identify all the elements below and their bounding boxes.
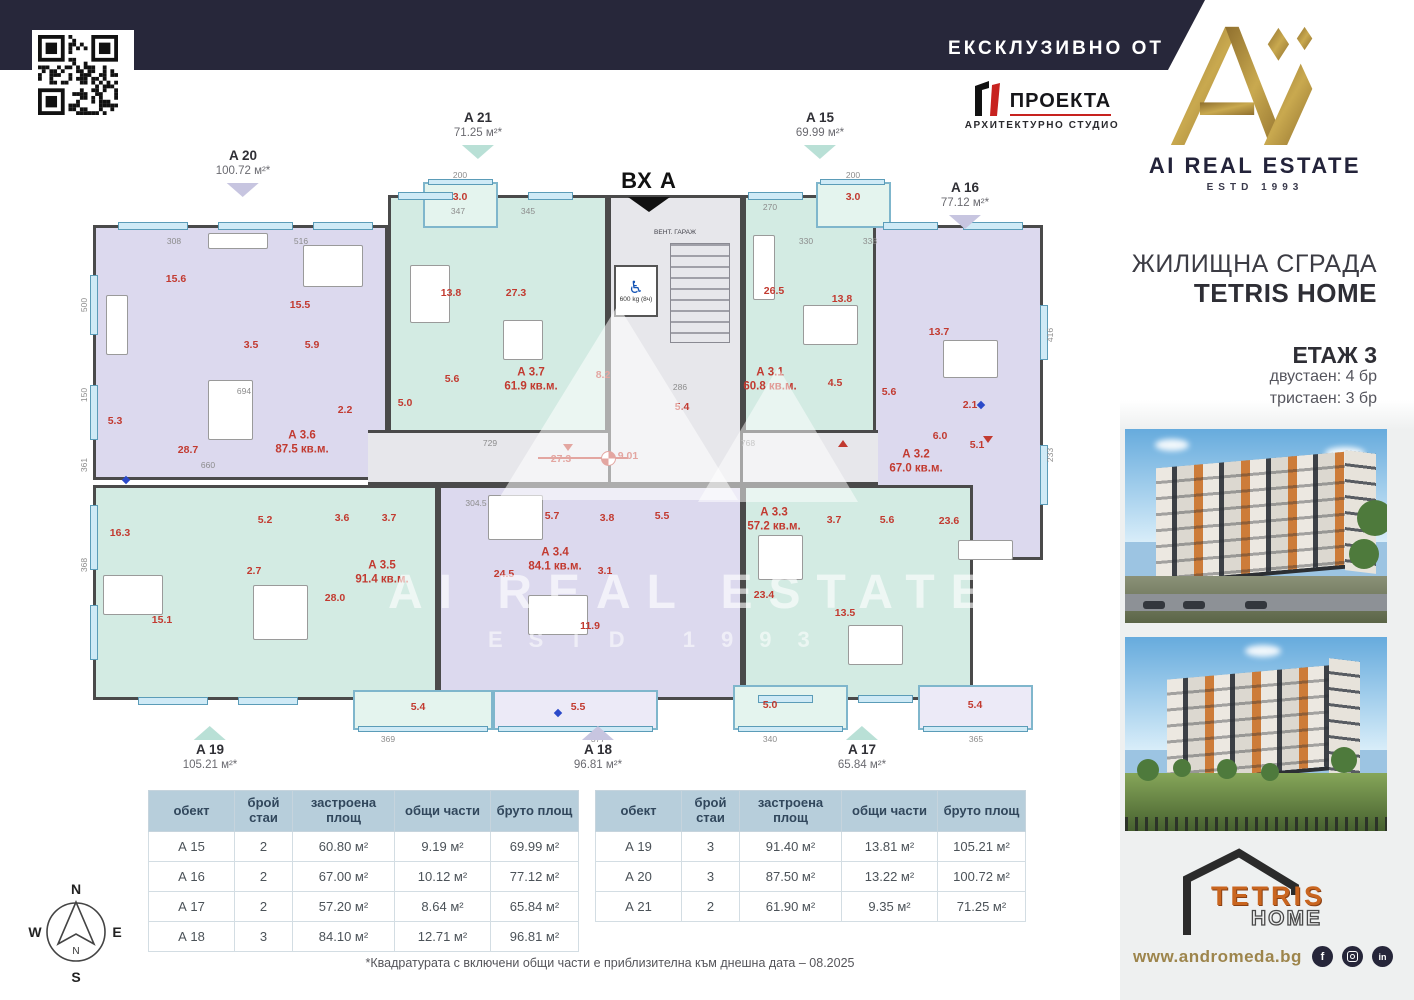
table-cell: 2 bbox=[682, 892, 740, 922]
compass-inner-n: N bbox=[72, 946, 79, 957]
col-header: бруто площ bbox=[491, 791, 579, 832]
furniture bbox=[303, 245, 363, 287]
col-header: брой стаи bbox=[682, 791, 740, 832]
table-cell: А 15 bbox=[149, 832, 235, 862]
table-cell: 9.35 м² bbox=[842, 892, 938, 922]
tree bbox=[1357, 500, 1387, 536]
balcony-area: 5.4 bbox=[968, 699, 983, 711]
marker-name: A 18 bbox=[574, 742, 622, 758]
units-count-2room: двустаен: 4 бр bbox=[1123, 368, 1377, 386]
window-strip bbox=[90, 275, 98, 335]
tree bbox=[1331, 747, 1357, 773]
arrow-up-icon bbox=[846, 726, 878, 740]
dimension: 304.5 bbox=[465, 498, 486, 508]
furniture bbox=[958, 540, 1013, 560]
room-area: 26.5 bbox=[764, 285, 784, 297]
table-cell: 69.99 м² bbox=[491, 832, 579, 862]
fence bbox=[1125, 817, 1387, 831]
table-cell: А 18 bbox=[149, 922, 235, 952]
building-name: TETRIS HOME bbox=[1123, 278, 1377, 309]
room-area: 5.9 bbox=[305, 339, 320, 351]
dimension: 200 bbox=[846, 170, 860, 180]
table-row: А 17257.20 м²8.64 м²65.84 м² bbox=[149, 892, 579, 922]
window-strip bbox=[748, 192, 803, 200]
table-cell: 67.00 м² bbox=[293, 862, 395, 892]
table-cell: 12.71 м² bbox=[395, 922, 491, 952]
dimension: 694 bbox=[237, 386, 251, 396]
room-area: 3.8 bbox=[600, 512, 615, 524]
table-cell: 3 bbox=[682, 862, 740, 892]
balcony-area: 3.0 bbox=[846, 191, 861, 203]
table-cell: А 17 bbox=[149, 892, 235, 922]
dimension: 729 bbox=[483, 438, 497, 448]
room-area: 6.0 bbox=[933, 430, 948, 442]
compass-s: S bbox=[71, 969, 80, 985]
marker-area: 100.72 м²* bbox=[216, 164, 271, 179]
furniture bbox=[488, 495, 543, 540]
dimension: 516 bbox=[294, 236, 308, 246]
room-area: 3.5 bbox=[244, 339, 259, 351]
building-photo-2 bbox=[1125, 637, 1387, 831]
dimension: 340 bbox=[763, 734, 777, 744]
tetris-home-word: HOME bbox=[1251, 907, 1322, 931]
room-area: 5.6 bbox=[880, 514, 895, 526]
tetris-home-logo: TETRIS HOME bbox=[1177, 845, 1357, 937]
marker-name: A 19 bbox=[183, 742, 238, 758]
marker-area: 77.12 м²* bbox=[941, 196, 989, 211]
marker-area: 69.99 м²* bbox=[796, 126, 844, 141]
room-area: 3.6 bbox=[335, 512, 350, 524]
room-area: 5.7 bbox=[545, 510, 560, 522]
social-icons: f in bbox=[1312, 946, 1393, 967]
table-cell: 71.25 м² bbox=[938, 892, 1026, 922]
window-strip bbox=[138, 697, 208, 705]
proekta-name: ПРОЕКТА bbox=[1010, 90, 1111, 116]
floor-label: ЕТАЖ 3 bbox=[1123, 342, 1377, 369]
window-strip bbox=[90, 385, 98, 440]
balcony-area: 5.5 bbox=[571, 701, 586, 713]
table-row: А 15260.80 м²9.19 м²69.99 м² bbox=[149, 832, 579, 862]
tree bbox=[1261, 763, 1279, 781]
unit-area: 57.2 кв.м. bbox=[747, 520, 800, 534]
furniture bbox=[253, 585, 308, 640]
table-row: А 16267.00 м²10.12 м²77.12 м² bbox=[149, 862, 579, 892]
dimension: 150 bbox=[79, 388, 89, 402]
red-tick-icon bbox=[983, 436, 993, 443]
room-area: 3.7 bbox=[827, 514, 842, 526]
brand-name: AI REAL ESTATE bbox=[1126, 153, 1384, 179]
table-cell: А 21 bbox=[596, 892, 682, 922]
table-cell: 61.90 м² bbox=[740, 892, 842, 922]
col-header: застроена площ bbox=[740, 791, 842, 832]
room-area: 15.6 bbox=[166, 273, 186, 285]
table-cell: 10.12 м² bbox=[395, 862, 491, 892]
dimension: 660 bbox=[201, 460, 215, 470]
table-cell: 3 bbox=[235, 922, 293, 952]
vent-label: ВЕНТ. ГАРАЖ bbox=[654, 229, 696, 236]
furniture bbox=[208, 233, 268, 249]
arrow-down-icon bbox=[227, 183, 259, 197]
tree bbox=[1137, 759, 1159, 781]
marker-name: A 20 bbox=[216, 148, 271, 164]
exclusive-label: ЕКСКЛУЗИВНО ОТ bbox=[940, 38, 1172, 60]
dimension: 345 bbox=[521, 206, 535, 216]
marker-A21: A 2171.25 м²* bbox=[454, 110, 502, 161]
table-cell: 87.50 м² bbox=[740, 862, 842, 892]
marker-A16: A 1677.12 м²* bbox=[941, 180, 989, 231]
window-strip bbox=[238, 697, 298, 705]
col-header: общи части bbox=[842, 791, 938, 832]
arrow-down-icon bbox=[949, 215, 981, 229]
floor-plan: ♿600 kg (8ч)ВЕНТ. ГАРАЖА 3.687.5 кв.м.15… bbox=[58, 145, 1120, 795]
room-area: 5.2 bbox=[258, 514, 273, 526]
compass-w: W bbox=[28, 924, 42, 940]
table-cell: 105.21 м² bbox=[938, 832, 1026, 862]
table-cell: 57.20 м² bbox=[293, 892, 395, 922]
marker-A17: A 1765.84 м²* bbox=[838, 722, 886, 773]
room-area: 5.0 bbox=[398, 397, 413, 409]
table-cell: 2 bbox=[235, 862, 293, 892]
table-cell: 9.19 м² bbox=[395, 832, 491, 862]
building-facade bbox=[1167, 664, 1340, 780]
unit-label: А 3.267.0 кв.м. bbox=[889, 448, 942, 477]
marker-name: A 17 bbox=[838, 742, 886, 758]
room-area: 5.3 bbox=[108, 415, 123, 427]
marker-name: A 21 bbox=[454, 110, 502, 126]
instagram-icon bbox=[1342, 946, 1363, 967]
wheelchair-icon: ♿ bbox=[628, 279, 643, 296]
linkedin-icon: in bbox=[1372, 946, 1393, 967]
entrance-label: ВХ А bbox=[607, 168, 691, 212]
areas-table-2: обектброй стаизастроена площобщи частибр… bbox=[595, 790, 1026, 922]
dimension: 416 bbox=[1045, 328, 1055, 342]
window-strip bbox=[90, 605, 98, 660]
balcony-area: 3.0 bbox=[453, 191, 468, 203]
table-cell: 65.84 м² bbox=[491, 892, 579, 922]
room-area: 13.7 bbox=[929, 326, 949, 338]
dimension: 369 bbox=[381, 734, 395, 744]
balcony bbox=[733, 685, 848, 730]
room-area: 5.5 bbox=[655, 510, 670, 522]
dimension: 270 bbox=[763, 202, 777, 212]
window-strip bbox=[358, 726, 488, 732]
room-area: 28.0 bbox=[325, 592, 345, 604]
room-area: 5.6 bbox=[445, 373, 460, 385]
dimension: 368 bbox=[79, 558, 89, 572]
watermark-estd: ESTD 1993 bbox=[488, 627, 836, 653]
areas-table-1: обектброй стаизастроена площобщи частибр… bbox=[148, 790, 579, 952]
table-cell: 77.12 м² bbox=[491, 862, 579, 892]
window-strip bbox=[118, 222, 188, 230]
col-header: застроена площ bbox=[293, 791, 395, 832]
proekta-icon bbox=[973, 80, 1003, 116]
furniture bbox=[803, 305, 858, 345]
room-area: 15.1 bbox=[152, 614, 172, 626]
furniture bbox=[848, 625, 903, 665]
entrance-arrow-icon bbox=[628, 197, 670, 212]
table-cell: 8.64 м² bbox=[395, 892, 491, 922]
window-strip bbox=[313, 222, 373, 230]
table-cell: 2 bbox=[235, 892, 293, 922]
room-area: 15.5 bbox=[290, 299, 310, 311]
room-area: 23.6 bbox=[939, 515, 959, 527]
dimension: 365 bbox=[969, 734, 983, 744]
brand-logo-icon bbox=[1167, 20, 1322, 153]
table-row: А 21261.90 м²9.35 м²71.25 м² bbox=[596, 892, 1026, 922]
col-header: общи части bbox=[395, 791, 491, 832]
marker-name: A 16 bbox=[941, 180, 989, 196]
marker-name: A 15 bbox=[796, 110, 844, 126]
room-area: 13.8 bbox=[832, 293, 852, 305]
marker-area: 105.21 м²* bbox=[183, 758, 238, 773]
compass-n: N bbox=[71, 881, 81, 897]
furniture bbox=[943, 340, 998, 378]
marker-A20: A 20100.72 м²* bbox=[216, 148, 271, 199]
elevator-capacity: 600 kg (8ч) bbox=[620, 296, 653, 304]
room-area: 13.8 bbox=[441, 287, 461, 299]
room-area: 5.6 bbox=[882, 386, 897, 398]
table-row: А 19391.40 м²13.81 м²105.21 м² bbox=[596, 832, 1026, 862]
window-strip bbox=[398, 192, 453, 200]
compass-rose: N E S W N bbox=[28, 878, 124, 991]
furniture bbox=[106, 295, 128, 355]
room-area: 16.3 bbox=[110, 527, 130, 539]
compass-e: E bbox=[112, 924, 121, 940]
unit-area: 67.0 кв.м. bbox=[889, 462, 942, 476]
window-strip bbox=[883, 222, 938, 230]
watermark-text: AI REAL ESTATE bbox=[388, 565, 999, 620]
room-area: 2.2 bbox=[338, 404, 353, 416]
dimension: 347 bbox=[451, 206, 465, 216]
car bbox=[1143, 601, 1165, 609]
dimension: 361 bbox=[79, 458, 89, 472]
room-area: 27.3 bbox=[506, 287, 526, 299]
table-row: А 18384.10 м²12.71 м²96.81 м² bbox=[149, 922, 579, 952]
car bbox=[1245, 601, 1267, 609]
proekta-subtitle: АРХИТЕКТУРНО СТУДИО bbox=[952, 120, 1132, 131]
dimension: 200 bbox=[453, 170, 467, 180]
dimension: 500 bbox=[79, 298, 89, 312]
balcony bbox=[423, 182, 498, 228]
qr-code bbox=[32, 30, 134, 130]
marker-area: 96.81 м²* bbox=[574, 758, 622, 773]
marker-A19: A 19105.21 м²* bbox=[183, 722, 238, 773]
arrow-up-icon bbox=[582, 726, 614, 740]
facebook-icon: f bbox=[1312, 946, 1333, 967]
window-strip bbox=[923, 726, 1028, 732]
unit-label: А 3.687.5 кв.м. bbox=[275, 429, 328, 458]
marker-area: 71.25 м²* bbox=[454, 126, 502, 141]
units-count-3room: тристаен: 3 бр bbox=[1123, 390, 1377, 408]
col-header: бруто площ bbox=[938, 791, 1026, 832]
col-header: обект bbox=[149, 791, 235, 832]
window-strip bbox=[528, 192, 573, 200]
table-cell: 100.72 м² bbox=[938, 862, 1026, 892]
tree bbox=[1349, 539, 1379, 569]
table-cell: 60.80 м² bbox=[293, 832, 395, 862]
table-row: А 20387.50 м²13.22 м²100.72 м² bbox=[596, 862, 1026, 892]
proekta-logo: ПРОЕКТА АРХИТЕКТУРНО СТУДИО bbox=[952, 80, 1132, 131]
arrow-down-icon bbox=[804, 145, 836, 159]
brand-estd: ESTD 1993 bbox=[1126, 182, 1384, 193]
dimension: 338 bbox=[863, 236, 877, 246]
col-header: брой стаи bbox=[235, 791, 293, 832]
table-cell: А 20 bbox=[596, 862, 682, 892]
room-area: 2.1 bbox=[963, 399, 978, 411]
window-strip bbox=[90, 505, 98, 570]
window-strip bbox=[738, 726, 843, 732]
window-strip bbox=[218, 222, 293, 230]
dimension: 308 bbox=[167, 236, 181, 246]
col-header: обект bbox=[596, 791, 682, 832]
watermark-logo-2 bbox=[698, 367, 858, 502]
balcony bbox=[816, 182, 891, 228]
table-cell: 13.81 м² bbox=[842, 832, 938, 862]
table-cell: 13.22 м² bbox=[842, 862, 938, 892]
marker-area: 65.84 м²* bbox=[838, 758, 886, 773]
unit-area: 87.5 кв.м. bbox=[275, 443, 328, 457]
balcony-area: 5.0 bbox=[763, 699, 778, 711]
table-cell: А 16 bbox=[149, 862, 235, 892]
unit-label: А 3.357.2 кв.м. bbox=[747, 506, 800, 535]
building-title: ЖИЛИЩНА СГРАДА bbox=[1123, 250, 1377, 279]
arrow-down-icon bbox=[462, 145, 494, 159]
room-area: 3.7 bbox=[382, 512, 397, 524]
tree bbox=[1217, 759, 1237, 779]
table-cell: А 19 bbox=[596, 832, 682, 862]
dimension: 330 bbox=[799, 236, 813, 246]
furniture bbox=[103, 575, 163, 615]
table-cell: 91.40 м² bbox=[740, 832, 842, 862]
website-link: www.andromeda.bg bbox=[1133, 947, 1302, 967]
car bbox=[1183, 601, 1205, 609]
table-cell: 3 bbox=[682, 832, 740, 862]
building-photo-1 bbox=[1125, 429, 1387, 623]
table-cell: 2 bbox=[235, 832, 293, 862]
building-facade bbox=[1156, 452, 1345, 581]
marker-A15: A 1569.99 м²* bbox=[796, 110, 844, 161]
table-cell: 96.81 м² bbox=[491, 922, 579, 952]
dimension: 233 bbox=[1045, 448, 1055, 462]
marker-A18: A 1896.81 м²* bbox=[574, 722, 622, 773]
window-strip bbox=[858, 695, 913, 703]
table-cell: 84.10 м² bbox=[293, 922, 395, 952]
tree bbox=[1173, 759, 1191, 777]
footnote: *Квадратурата с включени общи части е пр… bbox=[300, 956, 920, 970]
balcony-area: 5.4 bbox=[411, 701, 426, 713]
arrow-up-icon bbox=[194, 726, 226, 740]
room-area: 28.7 bbox=[178, 444, 198, 456]
room-area: 2.7 bbox=[247, 565, 262, 577]
